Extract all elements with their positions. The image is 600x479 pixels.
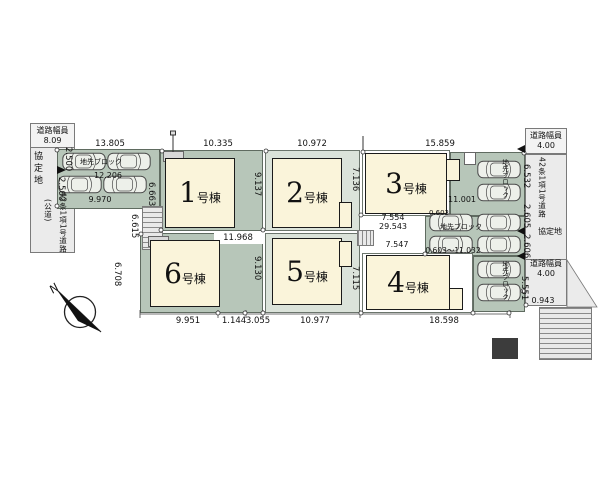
curb-block-label-right: 地先ブロック (440, 222, 482, 232)
building-6-number: 6 (164, 260, 182, 288)
building-2-suffix: 号棟 (304, 189, 328, 206)
dim-2605: 2.605 (521, 204, 531, 228)
road-right-width-value2: 4.00 (537, 269, 555, 279)
building-5: 5 号棟 (272, 238, 342, 305)
building-6-suffix: 号棟 (182, 270, 206, 287)
building-5-number: 5 (286, 258, 304, 286)
north-arrow-icon (57, 290, 101, 332)
dim-10972: 10.972 (284, 139, 340, 149)
boundary-marker-icon (517, 145, 525, 153)
road-left-width-box: 道路幅員 8.09 (30, 123, 75, 148)
dim-5551: 5.551 (519, 276, 529, 300)
building-5-annex (339, 241, 352, 267)
curb-block-vertical-1: 地先ブロック (501, 159, 508, 198)
road-right-width-label: 道路幅員 (530, 131, 562, 141)
dim-9951: 9.951 (166, 316, 210, 326)
road-right-width-box-mid: 道路幅員 4.00 (526, 259, 566, 279)
dim-9970: 9.970 (82, 195, 118, 204)
dim-7115: 7.115 (350, 266, 360, 290)
road-right-width-label2: 道路幅員 (530, 259, 562, 269)
steps-center (357, 230, 374, 246)
building-4-annex (449, 288, 463, 310)
road-left-width-label: 道路幅員 (37, 126, 69, 136)
dim-13805: 13.805 (78, 139, 142, 149)
dim-6532: 6.532 (521, 164, 531, 188)
building-1-label: 1 号棟 (166, 159, 234, 227)
road-right-name: 42条1項1号道路 (538, 157, 546, 218)
dim-7136: 7.136 (350, 167, 360, 191)
building-4-suffix: 号棟 (405, 279, 429, 296)
road-left-width-value: 8.09 (44, 136, 62, 146)
dim-7554: 7.554 (376, 213, 410, 222)
road-right-width-box-top: 道路幅員 4.00 (525, 128, 567, 154)
dim-0603: 0.603 (426, 209, 452, 217)
dim-0943: 0.943 (529, 296, 557, 305)
steps-right (539, 307, 592, 360)
building-5-suffix: 号棟 (304, 268, 328, 285)
dim-29543: 29.543 (372, 222, 414, 231)
dim-11001: 11.001 (444, 195, 480, 204)
road-right-diagonal (567, 260, 597, 307)
building-1-suffix: 号棟 (197, 189, 221, 206)
dim-7547: 7.547 (380, 240, 414, 249)
road-left-note: (公道) (44, 199, 52, 222)
building-3-annex (446, 159, 460, 181)
dim-10335: 10.335 (190, 139, 246, 149)
site-plan: 道路幅員 8.09 協定地 2.500 2.500 42条1項1号道路 (公道)… (0, 0, 600, 479)
building-3-number: 3 (385, 170, 403, 198)
road-left-name: 42条1項1号道路 (59, 192, 67, 253)
dim-2606: 2.606 (521, 234, 531, 258)
road-left-agreement-label: 協定地 (32, 151, 41, 187)
building-4-label: 4 号棟 (367, 256, 449, 309)
dim-15859: 15.859 (412, 139, 468, 149)
north-label: N (47, 281, 61, 296)
dim-6615: 6.615 (129, 214, 139, 238)
utility-box (464, 152, 476, 165)
road-right-width-value: 4.00 (537, 141, 555, 151)
dim-6663: 6.663 (146, 182, 156, 206)
building-2-annex (339, 202, 352, 228)
road-right-agreement-label: 協定地 (533, 226, 567, 237)
dim-18598: 18.598 (417, 316, 471, 326)
dim-9137: 9.137 (252, 172, 262, 196)
building-4: 4 号棟 (366, 255, 450, 310)
building-4-number: 4 (387, 269, 405, 297)
building-2-label: 2 号棟 (273, 159, 341, 227)
dim-3055: 3.055 (243, 316, 273, 326)
building-5-label: 5 号棟 (273, 239, 341, 304)
dim-11968: 11.968 (214, 233, 262, 243)
parking-right-lower (473, 256, 525, 312)
building-6: 6 号棟 (150, 240, 220, 307)
dim-9130: 9.130 (252, 256, 262, 280)
building-3: 3 号棟 (365, 153, 447, 214)
dim-10977: 10.977 (292, 316, 338, 326)
building-3-suffix: 号棟 (403, 180, 427, 197)
dim-12206: 12.206 (88, 171, 128, 180)
dim-0603-11032: 0.603～11.032 (418, 245, 488, 256)
boundary-arrow-icon (57, 166, 66, 174)
retaining-wall (492, 338, 518, 359)
curb-block-label-top: 地先ブロック (80, 157, 122, 167)
dim-6708: 6.708 (112, 262, 122, 286)
building-2-number: 2 (286, 179, 304, 207)
curb-block-vertical-2: 地先ブロック (501, 261, 508, 300)
building-1: 1 号棟 (165, 158, 235, 228)
parking-right-upper (450, 152, 525, 216)
building-3-label: 3 号棟 (366, 154, 446, 213)
building-1-number: 1 (179, 179, 197, 207)
building-2: 2 号棟 (272, 158, 342, 228)
building-6-label: 6 号棟 (151, 241, 219, 306)
